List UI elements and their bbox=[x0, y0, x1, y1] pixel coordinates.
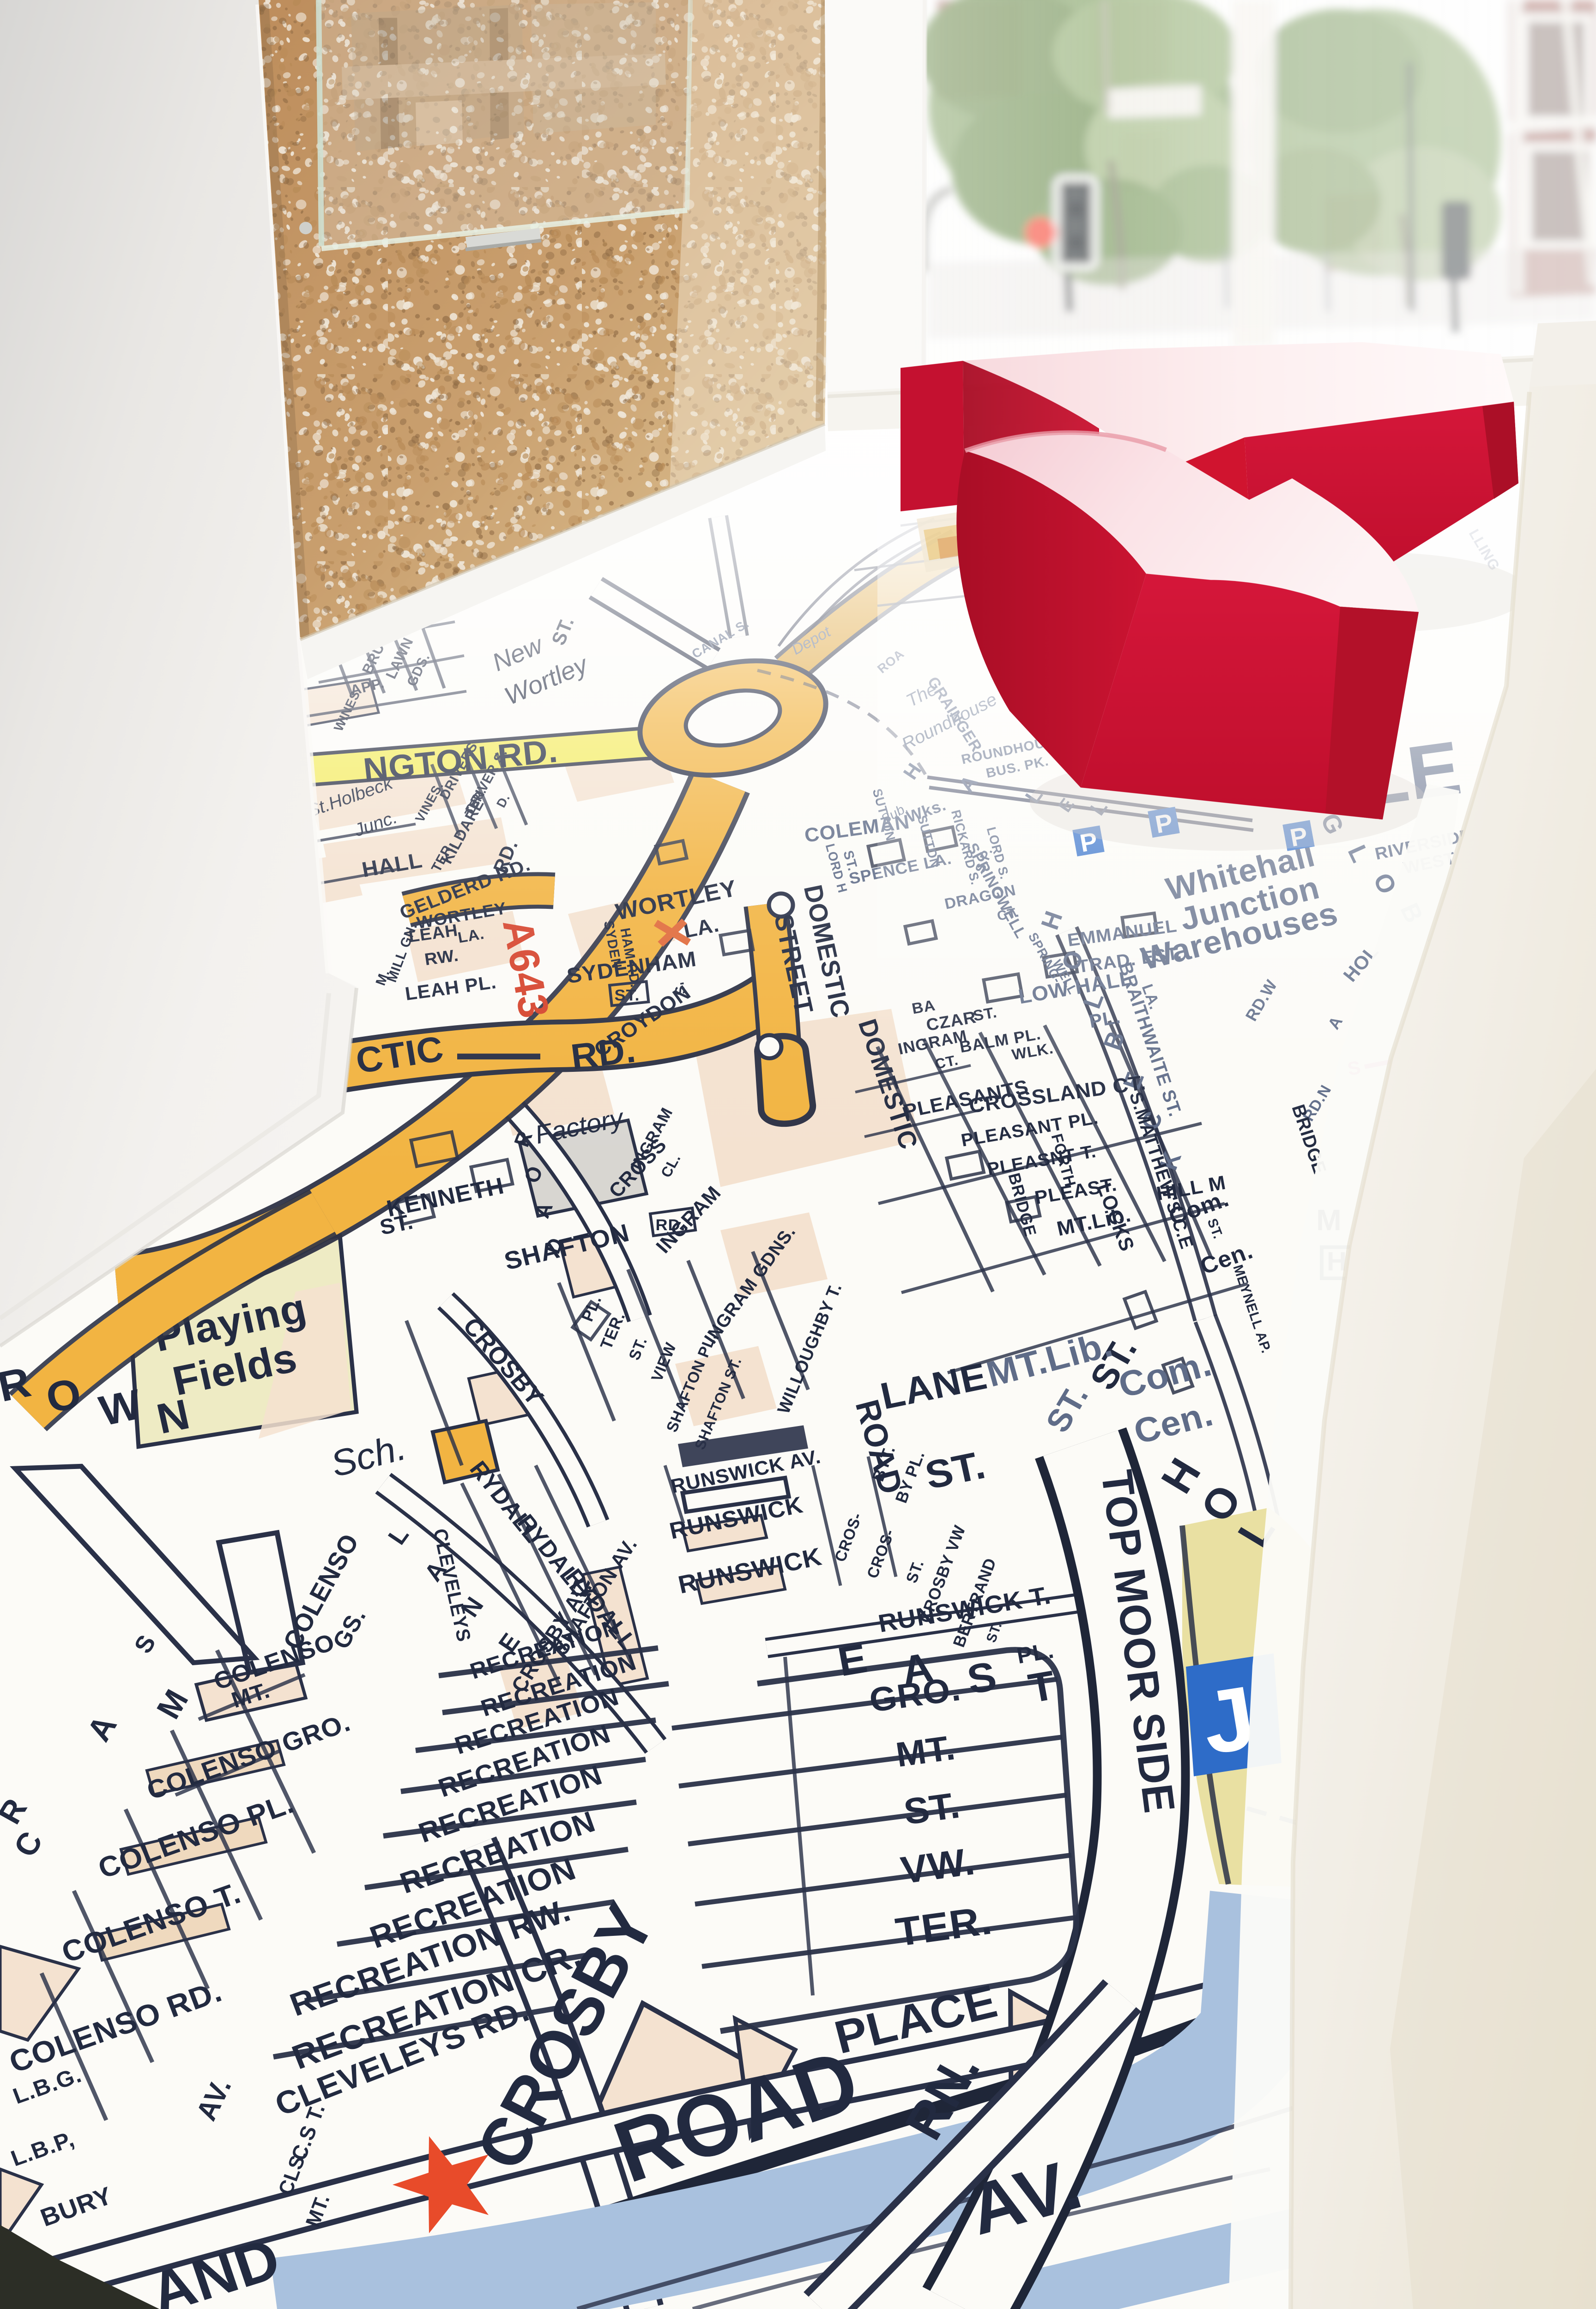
svg-text:ST.: ST. bbox=[901, 1785, 963, 1833]
svg-text:MT.: MT. bbox=[894, 1729, 958, 1775]
